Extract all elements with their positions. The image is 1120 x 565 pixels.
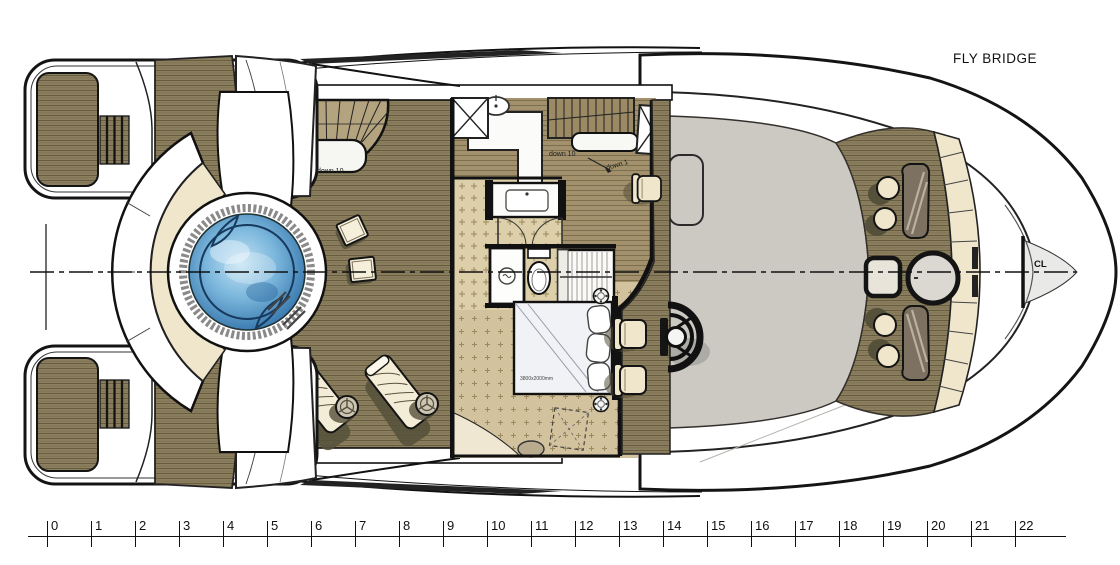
yacht-floorplan-svg: [0, 0, 1120, 565]
centerline-label: CL: [1034, 259, 1047, 270]
main-deck-stairs-label: down 10: [317, 168, 343, 175]
bow-round-table: [908, 253, 958, 303]
bed-size-label: 3800x2000mm: [520, 376, 553, 382]
bow-square-seat: [866, 258, 900, 296]
yacht-floorplan: FLY BRIDGE CL down 10 down 10 down 1 380…: [0, 0, 1120, 565]
porthole-top: [594, 289, 609, 304]
porthole-bottom: [594, 397, 609, 412]
shower: [490, 248, 524, 304]
deck-title: FLY BRIDGE: [953, 51, 1037, 66]
cabin-stairs-label: down 10: [549, 151, 575, 158]
